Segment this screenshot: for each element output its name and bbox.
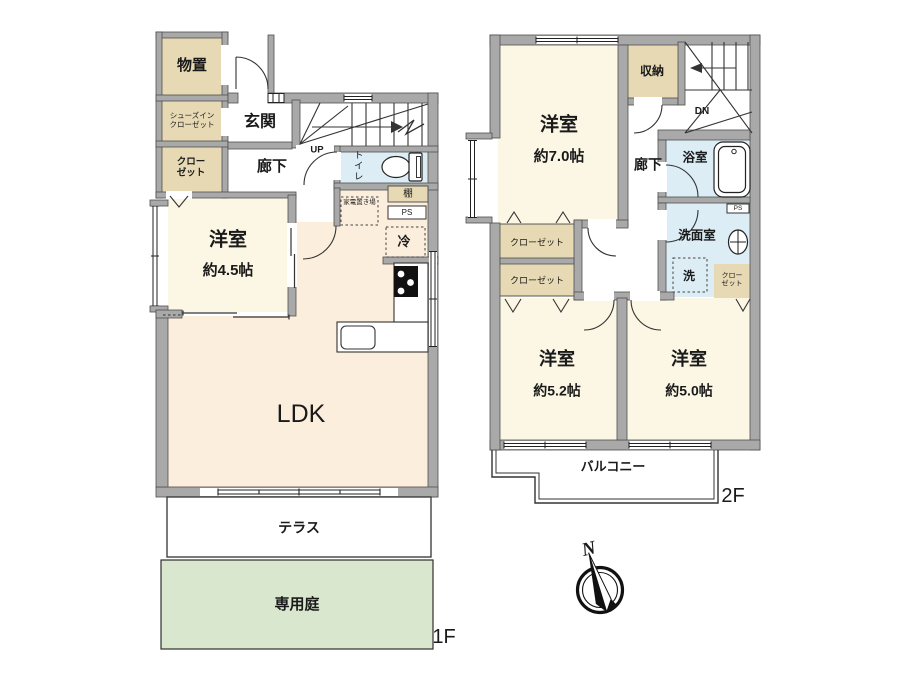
closet-upper-label: クローゼット — [510, 237, 564, 248]
bedroom70-label: 洋室 — [540, 115, 578, 138]
bedroom50-size: 約5.0帖 — [665, 383, 712, 400]
window-top-1f — [344, 94, 372, 102]
laundry-label: 洗 — [683, 269, 695, 283]
floor-plan: 物置 シューズイン クローゼット クロー ゼット 玄関 廊下 UP トイレ 棚 … — [0, 0, 920, 690]
storage-label-1f: 物置 — [177, 57, 207, 75]
fridge-label: 冷 — [397, 234, 410, 250]
shoes-closet-line1: シューズイン — [170, 111, 215, 120]
bedroom70-size: 約7.0帖 — [534, 148, 585, 166]
entrance-label: 玄関 — [244, 112, 276, 131]
shoes-closet-line2: クローゼット — [170, 120, 215, 129]
bedroom45-label: 洋室 — [209, 230, 247, 253]
closet-small-label: クロー ゼット — [722, 273, 743, 290]
pipe-space-label-2f: PS — [734, 205, 743, 213]
storage-label-2f: 収納 — [640, 64, 664, 78]
stove-icon — [394, 266, 418, 297]
bathroom-label: 浴室 — [682, 151, 707, 166]
closet-small-line2: ゼット — [722, 281, 743, 289]
bedroom-4-5 — [168, 198, 288, 312]
window-right-1f — [429, 251, 437, 347]
bedroom45-size: 約4.5帖 — [203, 262, 254, 280]
floor1-label: 1F — [432, 625, 455, 649]
floor2-plan — [466, 35, 760, 503]
bay-window-glass-1f — [151, 205, 159, 307]
balcony-outline — [492, 450, 718, 503]
appliance-space-label: 家電置き場 — [343, 199, 376, 207]
balcony-label: バルコニー — [581, 459, 646, 475]
entry-sill-marker — [268, 94, 284, 103]
bedroom50-label: 洋室 — [671, 349, 707, 371]
closet-lower-label: クローゼット — [510, 275, 564, 286]
bedroom52-label: 洋室 — [539, 349, 575, 371]
ldk-label: LDK — [277, 399, 326, 429]
stairs-down-label: DN — [695, 106, 709, 118]
bedroom52-size: 約5.2帖 — [533, 383, 580, 400]
pipe-space-label-1f: PS — [402, 208, 413, 218]
window-bottom-1f — [200, 488, 398, 496]
hallway-label-2f: 廊下 — [634, 157, 662, 174]
bay-window-glass-2f — [468, 140, 477, 218]
stairs-up-label: UP — [310, 144, 323, 155]
closet-1f-line2: ゼット — [177, 168, 206, 179]
hallway-label-1f: 廊下 — [257, 158, 287, 176]
window-top-2f — [536, 36, 618, 44]
shelf-label: 棚 — [403, 188, 413, 199]
terrace-label: テラス — [278, 520, 320, 537]
shoes-closet-label: シューズイン クローゼット — [170, 111, 215, 129]
kitchen-sink — [341, 326, 375, 349]
bathtub-icon — [714, 142, 750, 197]
window-bottom-left-2f — [504, 441, 586, 449]
floor2-label: 2F — [721, 484, 744, 508]
washbasin-icon — [729, 230, 748, 254]
floor-plan-drawing — [0, 0, 920, 690]
closet-label-1f: クロー ゼット — [177, 157, 206, 180]
washroom-label: 洗面室 — [678, 229, 716, 244]
toilet-label: トイレ — [351, 150, 362, 182]
private-garden-label: 専用庭 — [274, 596, 319, 614]
closet-1f-line1: クロー — [177, 157, 206, 168]
window-bottom-right-2f — [629, 441, 711, 449]
